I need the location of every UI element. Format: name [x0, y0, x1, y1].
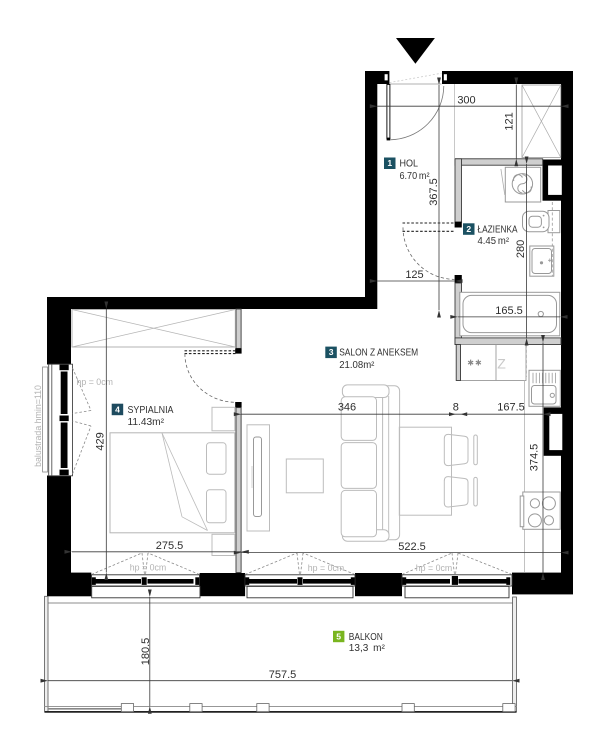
svg-text:121: 121: [504, 112, 516, 130]
svg-text:BALKON: BALKON: [349, 632, 383, 643]
svg-text:4: 4: [115, 404, 120, 414]
svg-text:Z: Z: [497, 356, 506, 372]
svg-text:280: 280: [515, 240, 527, 258]
svg-text:13,3 m²: 13,3 m²: [349, 643, 386, 654]
svg-text:ŁAZIENKA: ŁAZIENKA: [478, 225, 518, 236]
svg-text:8: 8: [453, 401, 459, 413]
svg-text:346: 346: [338, 401, 356, 413]
svg-text:367.5: 367.5: [428, 178, 440, 206]
svg-text:21.08m²: 21.08m²: [339, 360, 375, 371]
svg-text:4.45 m²: 4.45 m²: [478, 236, 510, 247]
svg-text:429: 429: [95, 432, 107, 450]
svg-text:5: 5: [336, 631, 341, 641]
svg-text:374.5: 374.5: [529, 444, 541, 472]
svg-text:757.5: 757.5: [269, 669, 297, 681]
svg-text:SYPIALNIA: SYPIALNIA: [128, 405, 174, 416]
svg-text:hp = 0cm: hp = 0cm: [308, 563, 344, 573]
svg-text:180.5: 180.5: [140, 638, 152, 666]
svg-text:✱✱: ✱✱: [467, 359, 482, 368]
svg-text:522.5: 522.5: [398, 541, 426, 553]
svg-text:125: 125: [405, 269, 423, 281]
svg-text:6.70 m²: 6.70 m²: [400, 171, 431, 182]
svg-text:1: 1: [387, 158, 392, 168]
svg-text:3: 3: [329, 347, 334, 357]
svg-text:275.5: 275.5: [156, 540, 184, 552]
svg-text:167.5: 167.5: [497, 401, 525, 413]
svg-text:hp = 0cm: hp = 0cm: [130, 562, 166, 572]
svg-text:165.5: 165.5: [495, 305, 523, 317]
svg-text:SALON Z ANEKSEM: SALON Z ANEKSEM: [339, 348, 418, 359]
svg-text:hp = 0cm: hp = 0cm: [77, 377, 113, 387]
svg-text:300: 300: [457, 94, 475, 106]
svg-text:2: 2: [466, 224, 471, 234]
svg-text:11.43m²: 11.43m²: [128, 417, 165, 428]
svg-text:hp = 0cm: hp = 0cm: [416, 563, 452, 573]
svg-text:HOL: HOL: [400, 159, 419, 170]
svg-text:balustrada hmin=110: balustrada hmin=110: [33, 385, 43, 467]
